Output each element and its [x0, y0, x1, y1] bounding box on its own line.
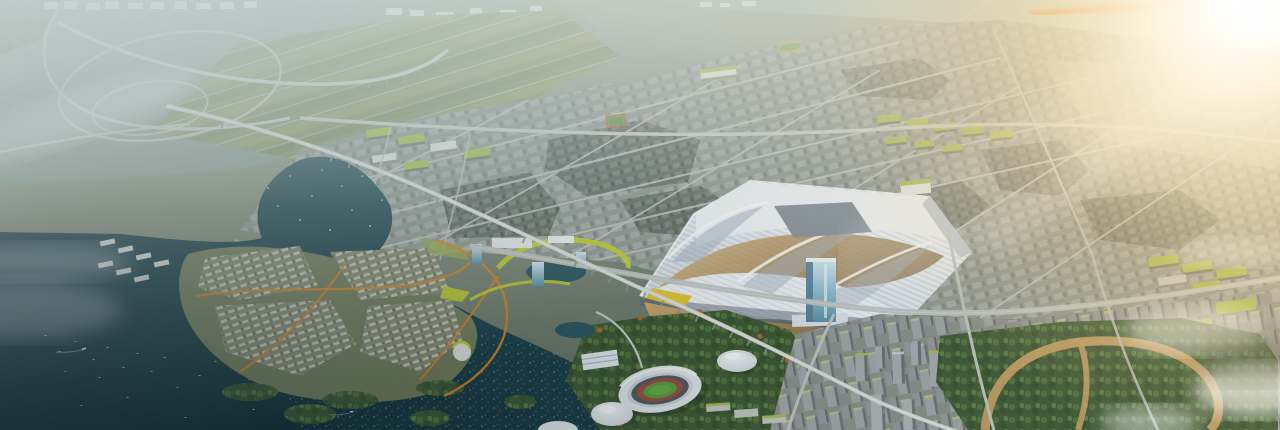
vignette: [0, 0, 1280, 430]
aerial-render-canvas: [0, 0, 1280, 430]
aerial-city-render: [0, 0, 1280, 430]
